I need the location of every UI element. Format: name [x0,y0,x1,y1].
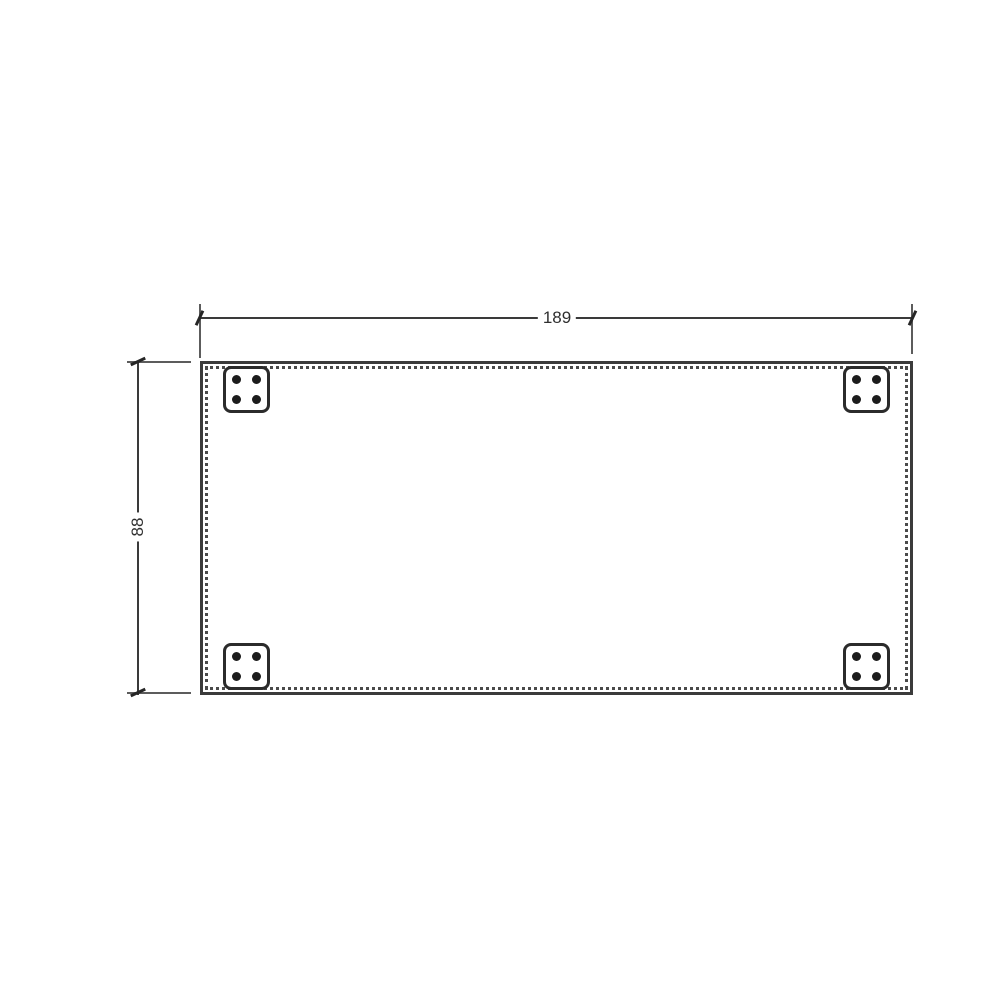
panel-inner-dotted-border [205,366,908,690]
screw-hole-icon [232,395,241,404]
screw-hole-icon [852,652,861,661]
screw-hole-icon [852,395,861,404]
screw-hole-icon [252,395,261,404]
screw-hole-icon [232,672,241,681]
screw-hole-icon [232,652,241,661]
screw-hole-icon [872,375,881,384]
screw-hole-icon [872,395,881,404]
screw-hole-icon [252,672,261,681]
screw-hole-icon [852,375,861,384]
screw-hole-icon [872,652,881,661]
panel-outline [200,361,913,695]
drawing-canvas: 189 88 [0,0,1000,1000]
screw-hole-icon [872,672,881,681]
screw-hole-icon [252,375,261,384]
screw-hole-icon [852,672,861,681]
mounting-plate-bottom-left [223,643,270,690]
mounting-plate-top-right [843,366,890,413]
screw-hole-icon [232,375,241,384]
mounting-plate-top-left [223,366,270,413]
screw-hole-icon [252,652,261,661]
mounting-plate-bottom-right [843,643,890,690]
width-dimension-label: 189 [538,308,576,328]
height-dimension-label: 88 [128,513,148,542]
